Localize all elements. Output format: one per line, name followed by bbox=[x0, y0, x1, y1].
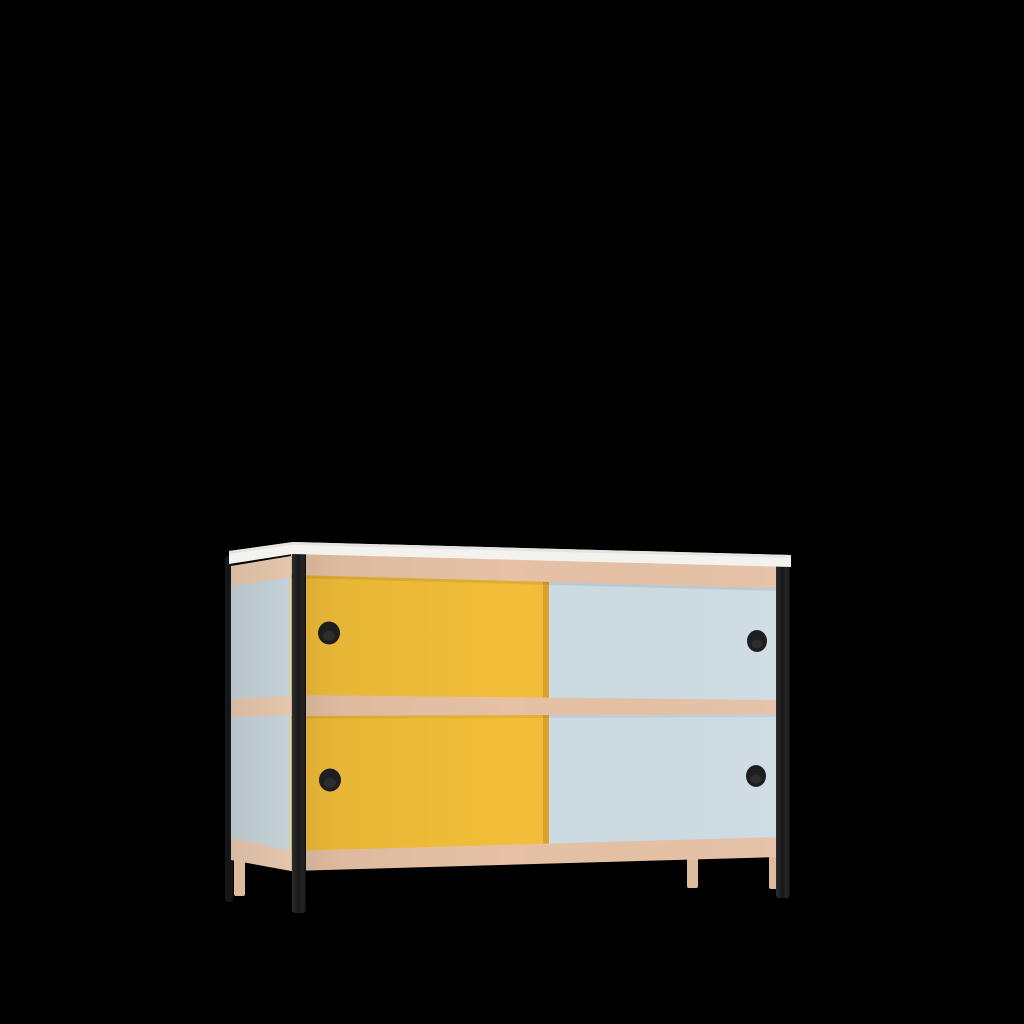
front-left-steel-leg-sheen bbox=[292, 548, 306, 913]
lower-left-handle-highlight bbox=[324, 778, 336, 788]
render-stage bbox=[0, 0, 1024, 1024]
cabinet bbox=[225, 542, 791, 913]
cabinet-render bbox=[0, 0, 1024, 1024]
upper-right-handle-highlight bbox=[752, 640, 763, 649]
upper-left-handle-highlight bbox=[323, 631, 335, 641]
front-middle-wood-leg bbox=[687, 856, 698, 888]
front-face-shading bbox=[291, 553, 779, 871]
side-face-shading bbox=[231, 556, 291, 871]
front-right-steel-leg-sheen bbox=[776, 558, 790, 898]
lower-right-handle-highlight bbox=[751, 775, 762, 784]
background bbox=[0, 0, 1024, 1024]
